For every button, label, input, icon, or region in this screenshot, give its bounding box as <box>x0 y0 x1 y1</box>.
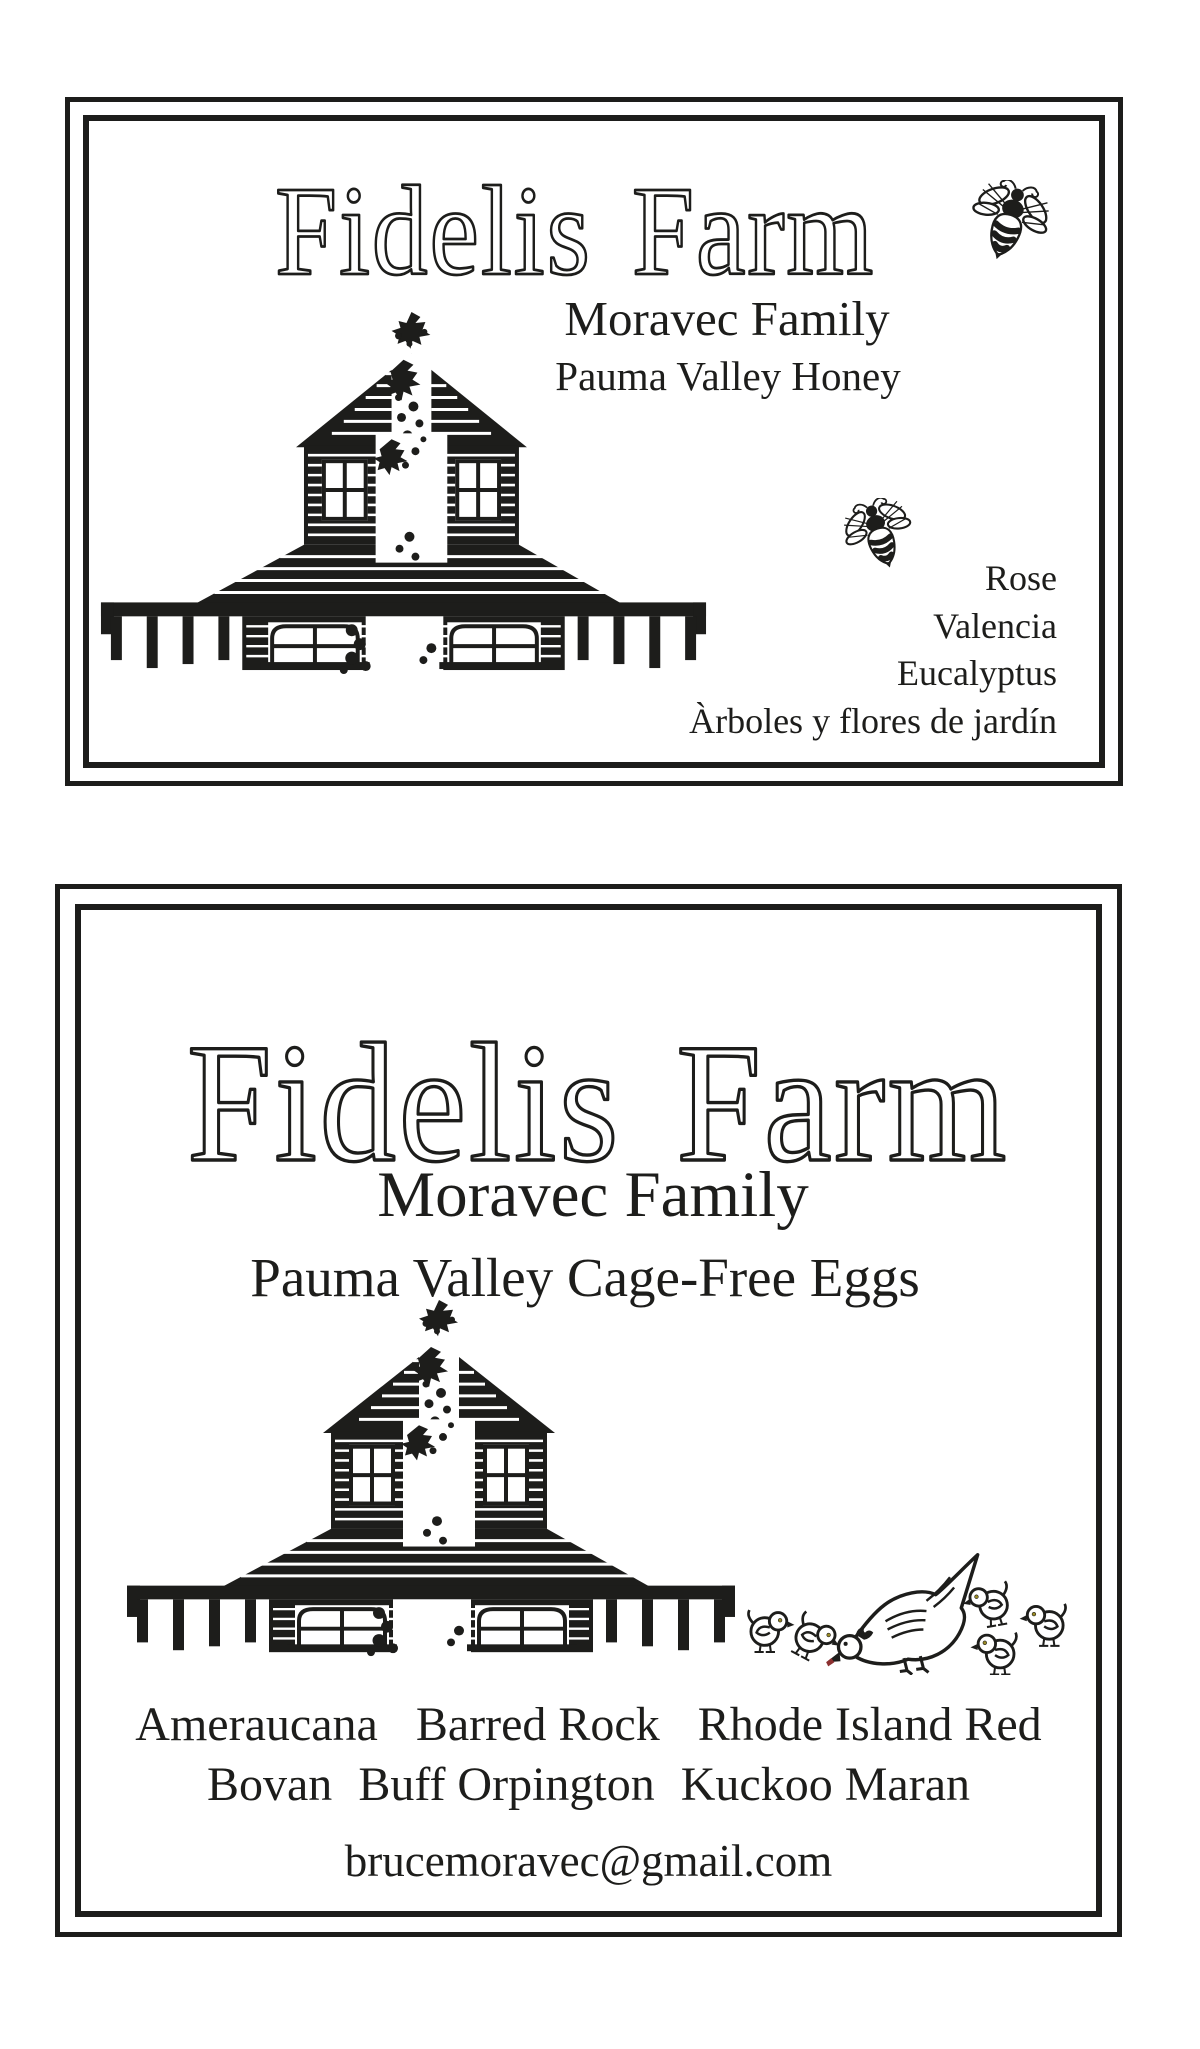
variety-item: Rose <box>689 555 1057 603</box>
breed-item: Kuckoo Maran <box>681 1759 970 1812</box>
family-name: Moravec Family <box>343 1160 843 1230</box>
hen-and-chicks-icon <box>732 1541 1080 1675</box>
breed-item: Buff Orpington <box>358 1759 654 1812</box>
barn-icon <box>121 1300 741 1660</box>
contact-email: brucemoravec@gmail.com <box>60 1835 1117 1887</box>
honey-label-card: Fidelis Farm Moravec Family Pauma Valley… <box>65 97 1123 786</box>
bee-icon <box>963 180 1055 262</box>
egg-label-title: Fidelis Farm <box>60 992 1117 1180</box>
breed-list-row1: AmeraucanaBarred RockRhode Island Red <box>60 1699 1117 1752</box>
product-name: Pauma Valley Cage-Free Eggs <box>235 1248 935 1307</box>
egg-label-card: Fidelis Farm Moravec Family Pauma Valley… <box>55 884 1122 1937</box>
breed-item: Ameraucana <box>135 1699 378 1752</box>
breed-item: Bovan <box>207 1759 332 1812</box>
honey-varieties-list: Rose Valencia Eucalyptus Àrboles y flore… <box>689 555 1057 745</box>
honey-label-title: Fidelis Farm <box>70 157 1118 289</box>
breed-item: Rhode Island Red <box>698 1699 1042 1752</box>
breed-item: Barred Rock <box>416 1699 660 1752</box>
variety-item: Eucalyptus <box>689 650 1057 698</box>
farm-title-text: Fidelis Farm <box>187 1009 1009 1180</box>
farm-title-text: Fidelis Farm <box>275 160 875 289</box>
barn-icon <box>95 312 712 678</box>
breed-list-row2: BovanBuff OrpingtonKuckoo Maran <box>60 1759 1117 1812</box>
variety-item: Àrboles y flores de jardín <box>689 698 1057 746</box>
variety-item: Valencia <box>689 603 1057 651</box>
